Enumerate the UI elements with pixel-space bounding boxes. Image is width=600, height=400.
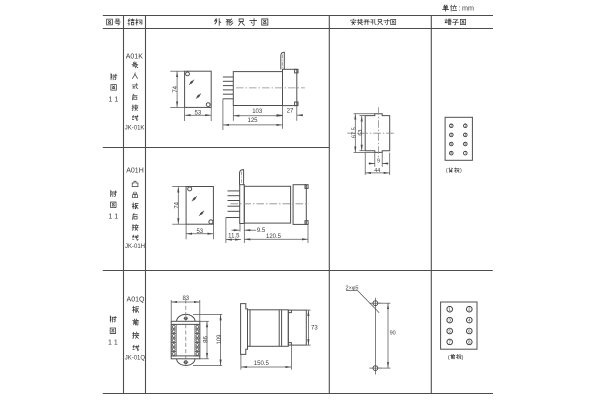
svg-text::: :: [458, 6, 460, 13]
svg-text:4: 4: [450, 133, 452, 137]
svg-text:): ): [460, 168, 462, 174]
svg-text:5: 5: [464, 142, 466, 146]
svg-text:): ): [462, 355, 464, 361]
svg-text:9: 9: [377, 159, 380, 165]
svg-text:90: 90: [390, 331, 396, 337]
svg-text:44: 44: [374, 168, 380, 174]
svg-text:109: 109: [217, 334, 223, 345]
svg-text:27: 27: [287, 109, 294, 115]
svg-text:11.5: 11.5: [228, 234, 240, 240]
svg-text:1 1: 1 1: [108, 340, 118, 347]
svg-text:86: 86: [204, 336, 210, 343]
svg-text:A01Q: A01Q: [127, 297, 145, 304]
svg-text:7: 7: [464, 151, 466, 155]
svg-text:JK-01K: JK-01K: [125, 125, 145, 131]
svg-text:8: 8: [450, 151, 452, 155]
svg-text:1: 1: [464, 124, 466, 128]
svg-text:74: 74: [173, 85, 179, 92]
svg-text:125: 125: [247, 118, 258, 124]
svg-text:mm: mm: [462, 4, 474, 13]
svg-text:73: 73: [311, 326, 318, 332]
svg-text:(: (: [448, 355, 450, 361]
svg-text:JK-01H: JK-01H: [125, 244, 145, 250]
svg-text:9.5: 9.5: [257, 228, 266, 234]
svg-text:3: 3: [464, 133, 466, 137]
svg-text:A01H: A01H: [126, 168, 144, 175]
svg-text:2: 2: [450, 124, 452, 128]
svg-text:A01K: A01K: [126, 54, 143, 61]
svg-text:6: 6: [450, 142, 452, 146]
svg-text:150.5: 150.5: [254, 361, 270, 367]
svg-text:1 1: 1 1: [109, 96, 119, 103]
svg-text:53: 53: [196, 229, 203, 235]
svg-text:83: 83: [182, 296, 189, 302]
svg-text:(: (: [446, 168, 448, 174]
svg-text:103: 103: [252, 109, 263, 115]
svg-text:53: 53: [195, 110, 202, 116]
svg-text:JK-01Q: JK-01Q: [125, 356, 146, 362]
svg-text:120.5: 120.5: [266, 234, 282, 240]
svg-text:63: 63: [358, 130, 364, 136]
svg-text:67.5: 67.5: [351, 127, 357, 138]
svg-text:74: 74: [175, 201, 181, 208]
svg-text:1 1: 1 1: [108, 214, 118, 221]
